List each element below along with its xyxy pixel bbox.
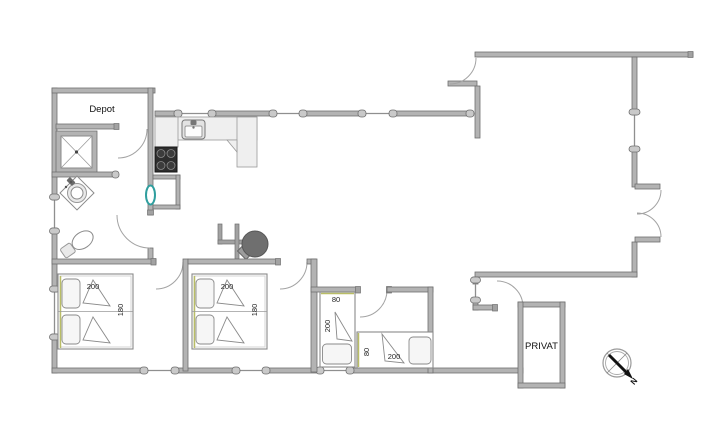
bed1-width-label: 180: [116, 304, 125, 317]
bed3-length-label: 200: [323, 320, 332, 333]
privat-room: PRIVAT: [518, 302, 565, 388]
compass-icon: N: [603, 349, 640, 386]
living-room-west-door-arc: [450, 58, 476, 84]
french-door-lower-arc: [637, 213, 661, 237]
bed1-length-label: 200: [87, 282, 100, 291]
french-door-upper-arc: [637, 190, 661, 214]
living-room: [448, 52, 693, 278]
bed2-length-label: 200: [221, 282, 234, 291]
compass-north-label: N: [629, 376, 640, 386]
bed-single-horizontal: 80 200: [357, 332, 433, 368]
bedroom1-door-arc: [156, 262, 183, 289]
kitchen: [146, 117, 257, 209]
bed3-width-label: 80: [332, 295, 340, 304]
entry-vestibule: [471, 277, 524, 311]
depot-room-label: Depot: [89, 104, 115, 115]
sink-icon: [60, 176, 94, 210]
bed4-width-label: 80: [362, 348, 371, 356]
bed4-length-label: 200: [388, 352, 401, 361]
privat-room-label: PRIVAT: [525, 341, 558, 352]
wood-stove-icon: [218, 224, 268, 259]
bed-single-vertical: 80 200: [320, 292, 355, 367]
floor-plan-canvas: Depot: [0, 0, 718, 434]
stove-icon: [155, 147, 177, 172]
water-heater-icon: [146, 186, 155, 205]
bedroom2-door-arc: [280, 262, 307, 289]
shower-icon: [56, 131, 97, 173]
toilet-icon: [58, 227, 96, 260]
floor-plan: Depot: [0, 0, 718, 434]
depot-door-arc: [118, 129, 147, 158]
bed-double-2: 200 180: [192, 274, 267, 349]
bed-double-1: 200 180: [58, 274, 133, 349]
kitchen-sink-icon: [182, 120, 205, 139]
bedroom3-door-arc: [360, 290, 387, 317]
bathroom-door-arc: [117, 215, 150, 248]
bed2-width-label: 180: [250, 304, 259, 317]
